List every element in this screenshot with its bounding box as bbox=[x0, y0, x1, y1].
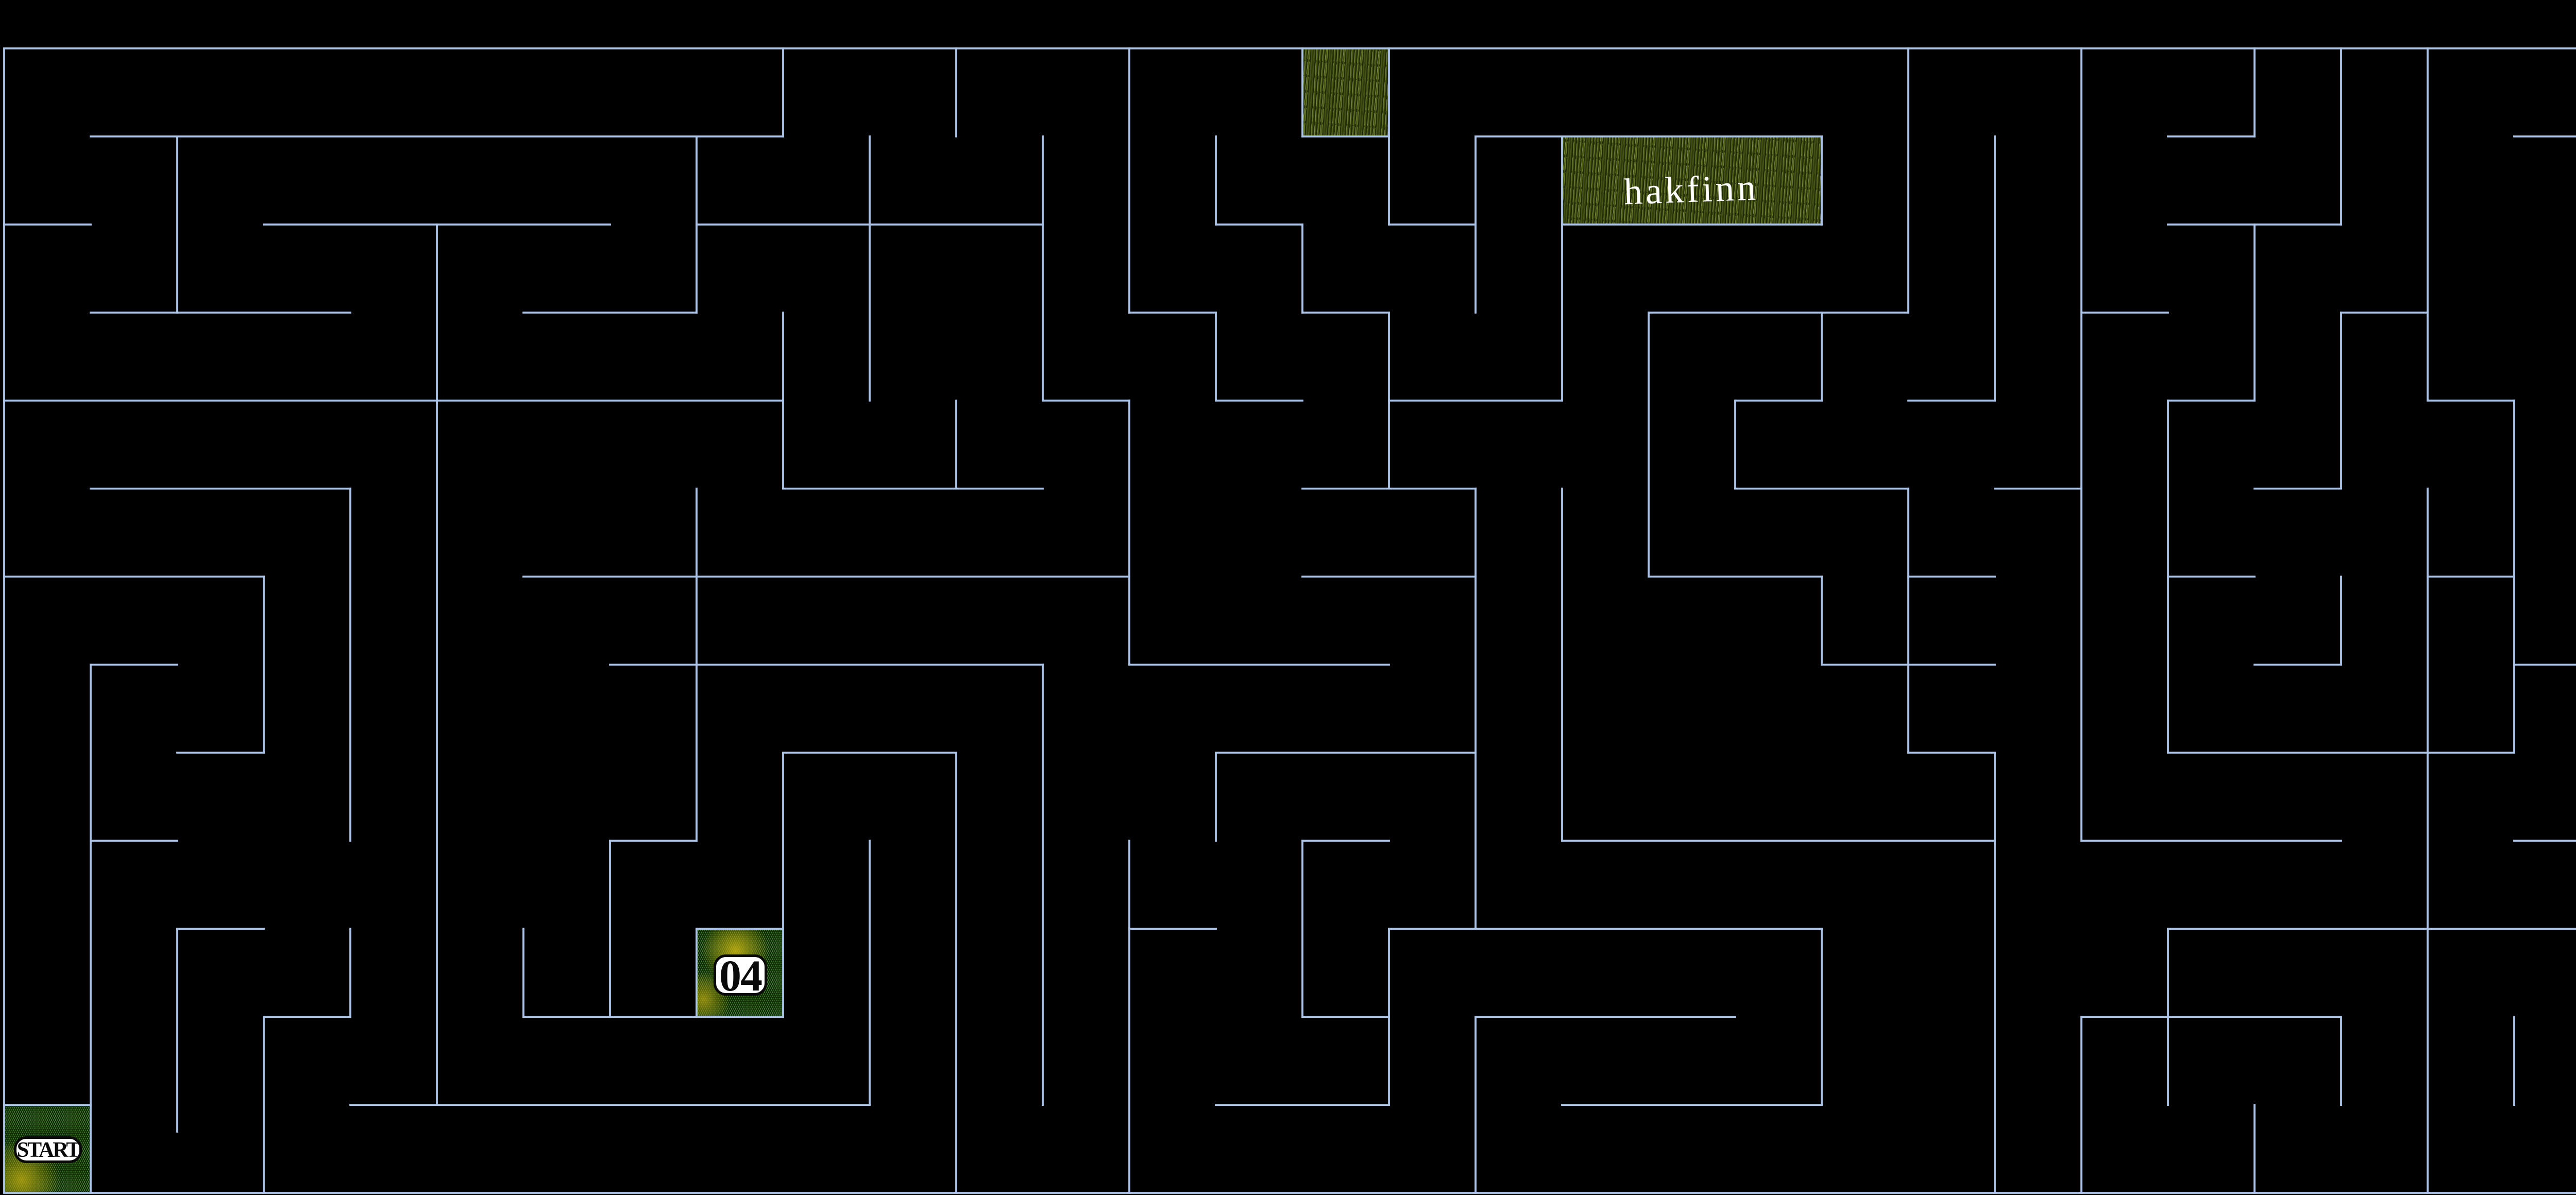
svg-text:hakfinn: hakfinn bbox=[1623, 166, 1759, 212]
